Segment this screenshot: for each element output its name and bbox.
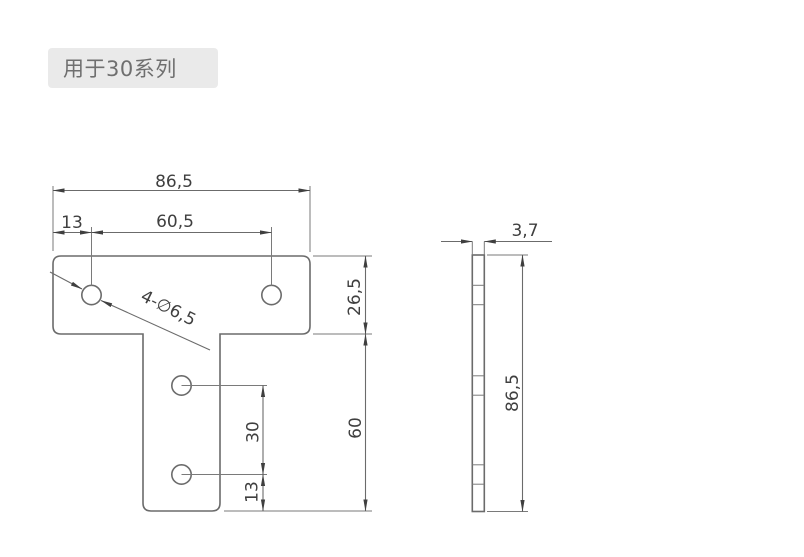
dim-label-stem-height: 60 [346,417,366,439]
dim-label-side-height: 86,5 [503,374,523,412]
dim-label-top-hole-spacing: 60,5 [156,212,194,232]
front-view: 86,5 13 60,5 4-∅6,5 2 [50,172,372,511]
dim-label-hole-callout: 4-∅6,5 [137,286,199,330]
dim-flange-height: 26,5 [313,256,372,334]
dim-label-total-width: 86,5 [155,172,193,192]
hole-callout-leader: 4-∅6,5 [50,272,210,350]
dim-label-left-hole-offset: 13 [61,213,83,233]
hole-top-right [262,285,281,304]
dim-label-bottom-hole-offset: 13 [243,481,263,503]
technical-drawing-page: 用于30系列 86,5 [0,0,804,557]
dim-top-holes: 13 60,5 [53,212,272,286]
dim-label-stem-hole-spacing: 30 [244,421,264,443]
dim-label-flange-height: 26,5 [345,278,365,316]
hidden-hole-edges [472,285,484,484]
hole-top-left [82,285,101,304]
side-profile-outline [472,255,484,512]
t-plate-outline [53,256,310,511]
dim-side-height: 86,5 [487,255,528,512]
dimension-drawing: 86,5 13 60,5 4-∅6,5 2 [0,0,804,557]
dim-label-thickness: 3,7 [511,221,538,241]
leader-line [50,272,82,289]
dim-thickness: 3,7 [441,221,552,255]
side-view: 3,7 86,5 [441,221,552,512]
dim-stem-holes: 30 13 [182,386,268,512]
